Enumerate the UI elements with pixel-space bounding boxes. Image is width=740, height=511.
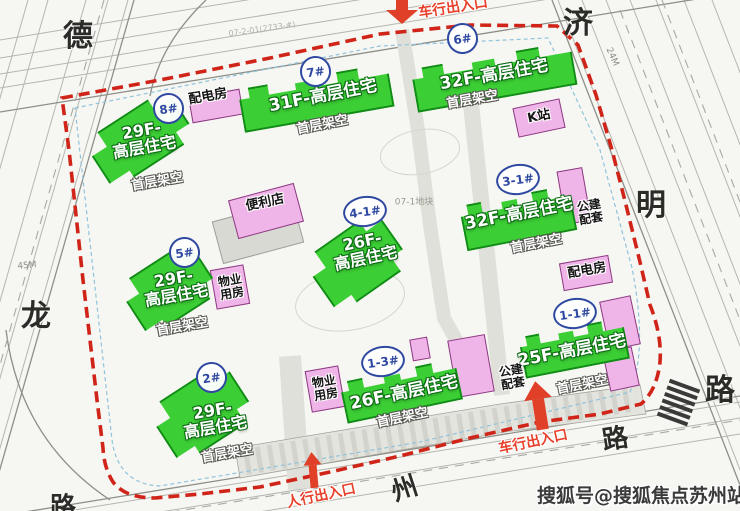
- road-name-character: 龙: [21, 291, 51, 335]
- plan-annotation: 45M: [17, 260, 37, 272]
- facility-label: 物业用房: [311, 374, 339, 403]
- watermark: 搜狐号@搜狐焦点苏州站: [537, 481, 740, 508]
- facility-label: 公建配套: [498, 363, 526, 392]
- road-name-character: 德: [63, 11, 93, 55]
- arrow-head: [302, 451, 321, 466]
- facility-building-footprint: [409, 337, 431, 362]
- road-name-character: 路: [599, 417, 630, 458]
- entrance-arrow-icon: [302, 451, 323, 488]
- road-name-character: 路: [50, 487, 76, 511]
- road-name-character: 济: [563, 0, 593, 42]
- arrow-head: [386, 10, 418, 24]
- site-plan-canvas: 搜狐号@搜狐焦点苏州站 29F-高层住宅首层架空8#31F-高层住宅首层架空7#…: [0, 0, 740, 511]
- arrow-shaft: [396, 0, 408, 10]
- entrance-arrow-icon: [385, 0, 418, 24]
- road-name-character: 路: [705, 365, 735, 409]
- facility-label: 公建配套: [576, 198, 604, 227]
- road-name-character: 明: [636, 180, 666, 224]
- arrow-shaft: [532, 398, 549, 430]
- facility-label: 物业用房: [217, 273, 245, 302]
- plan-annotation: 07-1地块: [395, 195, 433, 208]
- arrow-head: [521, 379, 551, 401]
